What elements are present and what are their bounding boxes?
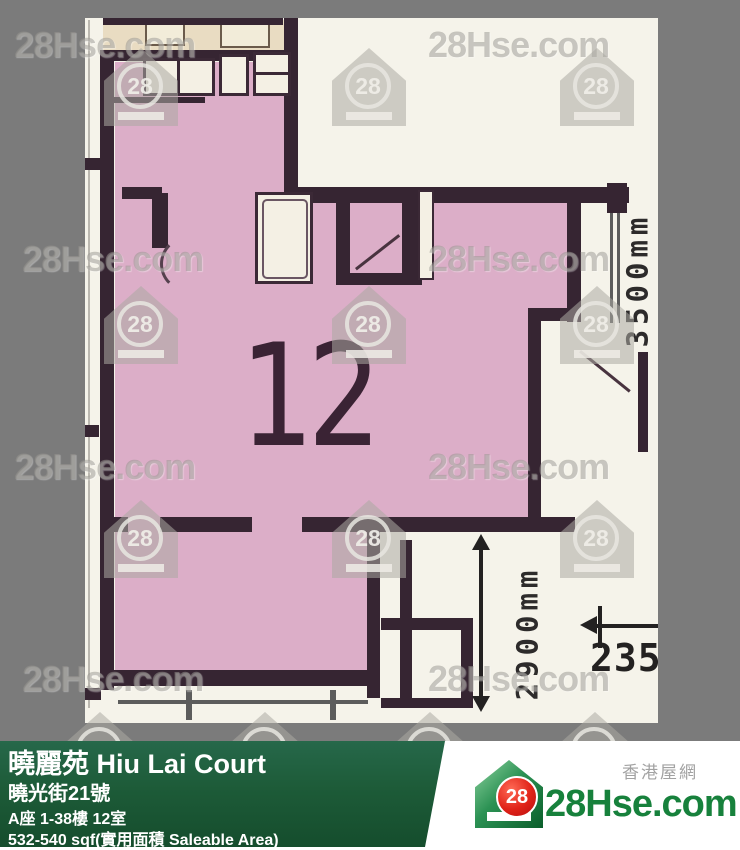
bathtub-inner bbox=[262, 199, 308, 279]
bay-window-wall bbox=[381, 698, 471, 708]
wall bbox=[638, 352, 648, 452]
wall bbox=[103, 670, 373, 686]
wall bbox=[103, 18, 283, 25]
brand-site-name: 28Hse.com bbox=[545, 783, 737, 826]
dimension-arrow-up bbox=[472, 534, 490, 550]
dimension-line bbox=[479, 548, 483, 698]
stove-line bbox=[256, 72, 288, 75]
counter-divider bbox=[177, 61, 180, 93]
wall bbox=[103, 517, 128, 532]
dimension-right-label: 3500mm bbox=[621, 198, 655, 363]
estate-name: 曉麗苑 Hiu Lai Court bbox=[8, 742, 266, 781]
dimension-arrow-left bbox=[580, 616, 597, 634]
neighbour-fixture bbox=[145, 22, 185, 46]
bathtub bbox=[255, 192, 313, 284]
wall bbox=[402, 187, 418, 282]
window-line bbox=[610, 213, 613, 323]
saleable-area: 532-540 sqf(實用面積 Saleable Area) bbox=[8, 826, 279, 850]
kitchen-counter bbox=[143, 58, 215, 96]
wall bbox=[160, 517, 252, 532]
wall bbox=[528, 308, 541, 520]
wall bbox=[302, 517, 575, 532]
wall bbox=[152, 193, 168, 248]
bay-window-wall bbox=[461, 618, 473, 708]
light-well bbox=[418, 190, 434, 280]
dimension-bottom-label: 2900mm bbox=[511, 551, 545, 716]
kitchen-sink bbox=[219, 54, 249, 96]
wall bbox=[284, 18, 298, 199]
dimension-arrow-down bbox=[472, 696, 490, 712]
sheet-margin-line bbox=[88, 20, 90, 708]
dimension-small-label: 2350 bbox=[590, 636, 658, 680]
wall bbox=[336, 187, 350, 282]
wall bbox=[100, 50, 114, 690]
dimension-line bbox=[596, 624, 658, 628]
balcony-tick bbox=[330, 690, 336, 720]
balcony-tick bbox=[186, 690, 192, 720]
info-bar: 曉麗苑 Hiu Lai Court 曉光街21號 A座 1-38樓 12室 53… bbox=[0, 741, 740, 850]
kitchen-stove bbox=[253, 52, 291, 96]
site-chinese-name: 香港屋網 bbox=[622, 758, 698, 783]
street-address: 曉光街21號 bbox=[8, 777, 110, 806]
wall-stub bbox=[85, 688, 101, 700]
wall bbox=[567, 197, 581, 322]
unit-number-label: 12 bbox=[240, 326, 375, 468]
brand-28: 28 bbox=[506, 786, 528, 809]
wall bbox=[336, 273, 422, 285]
wall-stub bbox=[85, 425, 99, 437]
bay-window-wall bbox=[381, 618, 471, 630]
floor-plan-sheet: 12 3500mm 2900mm 2350 bbox=[85, 18, 658, 723]
wall-stub bbox=[85, 158, 103, 170]
door-swing-arc bbox=[160, 236, 216, 292]
brand-28-badge: 28 bbox=[496, 776, 538, 818]
wall bbox=[113, 97, 205, 103]
